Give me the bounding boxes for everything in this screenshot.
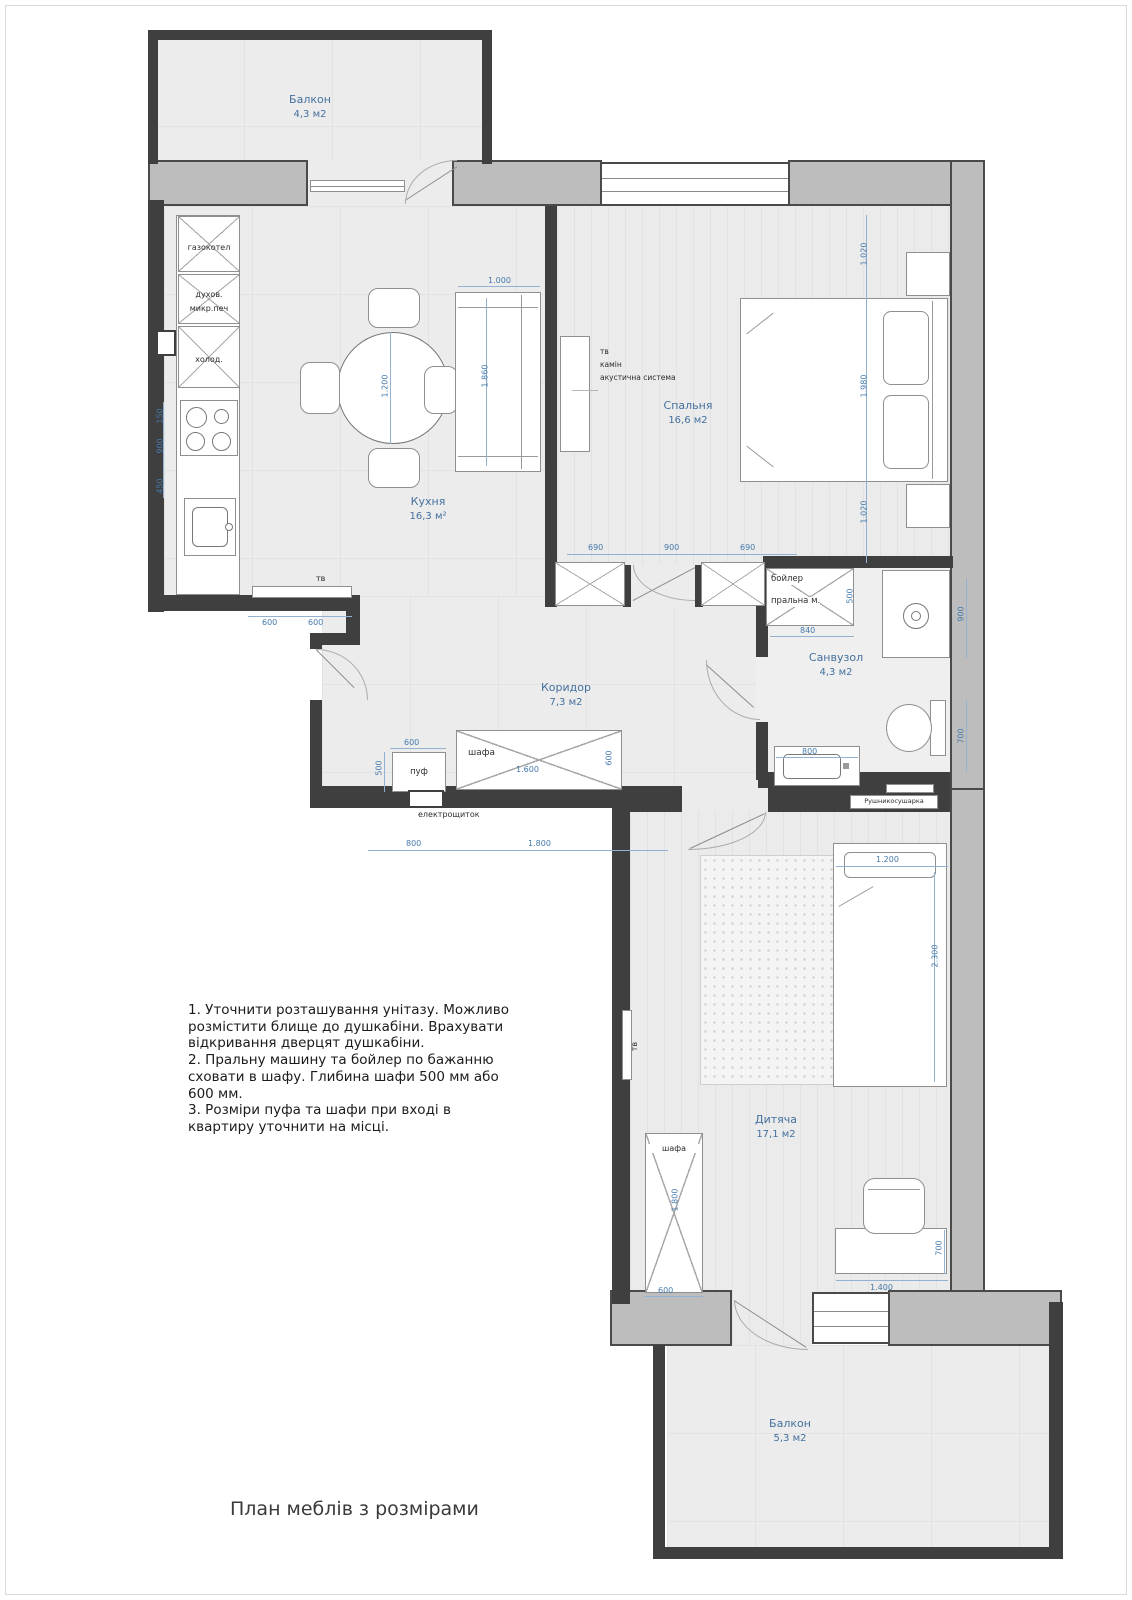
- dimension-label: 600: [658, 1287, 673, 1295]
- chair: [368, 288, 420, 328]
- dimension-line: [966, 578, 967, 658]
- exterior-wall: [950, 788, 985, 1295]
- kids-window: [812, 1292, 890, 1344]
- dimension-line: [836, 1280, 948, 1281]
- dimension-label: 2.300: [931, 945, 939, 968]
- dimension-label: 1.000: [488, 277, 511, 285]
- stove: [180, 400, 238, 456]
- burner: [212, 432, 231, 451]
- label-leader-line: [572, 390, 598, 391]
- window-line: [602, 178, 788, 179]
- burner: [186, 407, 207, 428]
- balcony-wall: [148, 30, 158, 164]
- dimension-label: 500: [847, 588, 855, 603]
- fridge-label: холод.: [179, 355, 239, 364]
- dimension-line: [944, 1230, 945, 1274]
- sofa: [455, 292, 541, 472]
- dimension-line: [966, 700, 967, 772]
- bedroom-window: [600, 162, 790, 206]
- sofa-back-line: [521, 295, 522, 469]
- room-label-kids: Дитяча 17,1 м2: [755, 1112, 797, 1142]
- blanket-fold: [746, 446, 773, 468]
- burner: [186, 432, 205, 451]
- balcony-wall: [482, 30, 492, 164]
- dimension-label: 1.980: [860, 375, 868, 398]
- room-name: Коридор: [541, 680, 591, 696]
- dimension-label: 1.020: [860, 243, 868, 266]
- exterior-wall: [950, 160, 985, 790]
- burner: [214, 409, 229, 424]
- toilet-bowl: [886, 704, 932, 752]
- dimension-label: 600: [262, 619, 277, 627]
- kitchen-tv-label: тв: [316, 574, 325, 583]
- dimension-line: [458, 286, 540, 287]
- dimension-label: 1.200: [876, 856, 899, 864]
- kids-wardrobe: [645, 1133, 703, 1293]
- room-area: 16,6 м2: [664, 414, 713, 429]
- boiler-label: бойлер: [771, 575, 803, 585]
- kitchen-tv-bench: [252, 586, 352, 598]
- fireplace-label: камін: [600, 361, 622, 370]
- dimension-label: 1.020: [860, 501, 868, 524]
- room-label-balcony-bottom: Балкон 5,3 м2: [769, 1416, 811, 1446]
- dimension-line: [934, 872, 935, 1082]
- bed: [740, 298, 948, 482]
- kitchen-left-wall: [148, 200, 164, 612]
- note-3: 3. Розміри пуфа та шафи при вході в квар…: [188, 1102, 520, 1135]
- sofa-armrest-line: [458, 307, 538, 308]
- acoustic-label: акустична система: [600, 374, 676, 383]
- balcony-window-panel: [310, 180, 405, 192]
- balcony-wall: [148, 30, 492, 40]
- room-area: 5,3 м2: [769, 1432, 811, 1447]
- chair: [424, 366, 458, 414]
- window-line: [814, 1326, 888, 1327]
- bath-left-wall: [756, 722, 768, 780]
- blanket-fold: [746, 313, 773, 335]
- dimension-label: 150: [157, 408, 165, 423]
- faucet-mark: [843, 763, 849, 769]
- dimension-line: [390, 332, 391, 444]
- bedroom-closet: [701, 562, 765, 606]
- page-title: План меблів з розмірами: [230, 1498, 479, 1520]
- hall-wardrobe-label: шафа: [468, 748, 495, 758]
- bedroom-left-wall: [545, 206, 557, 567]
- room-name: Спальня: [664, 398, 713, 414]
- corridor-left-wall: [310, 633, 322, 649]
- pouf: пуф: [392, 752, 446, 792]
- blanket-fold: [838, 886, 873, 907]
- dimension-label: 1.860: [481, 365, 489, 388]
- window-line: [311, 186, 404, 187]
- room-label-balcony-top: Балкон 4,3 м2: [289, 92, 331, 122]
- wall-vent-box: [156, 330, 176, 356]
- towel-dryer: [886, 784, 934, 793]
- dimension-label: 900: [157, 438, 165, 453]
- room-name: Балкон: [769, 1416, 811, 1432]
- dimension-label: 1.800: [528, 840, 551, 848]
- dimension-label: 840: [800, 627, 815, 635]
- dimension-line: [645, 1296, 703, 1297]
- window-line: [602, 191, 788, 192]
- dimension-line: [770, 636, 854, 637]
- dimension-label: 690: [740, 544, 755, 552]
- washer-label: пральна м.: [771, 597, 820, 607]
- dimension-label: 1.400: [870, 1284, 893, 1292]
- headboard-line: [932, 301, 933, 479]
- dimension-label: 600: [606, 750, 614, 765]
- dimension-label: 700: [958, 728, 966, 743]
- room-label-kitchen: Кухня 16,3 м²: [410, 494, 447, 524]
- chair-back-line: [868, 1189, 920, 1190]
- room-name: Балкон: [289, 92, 331, 108]
- room-name: Кухня: [410, 494, 447, 510]
- floor-plan: газокотел духов. микр.печ холод. тв тв к…: [0, 0, 1132, 1600]
- kitchen-sink: [184, 498, 236, 556]
- balcony-bottom-wall: [653, 1547, 1063, 1559]
- toilet-tank: [930, 700, 946, 756]
- room-area: 4,3 м2: [289, 108, 331, 123]
- electrical-panel-box: [408, 790, 444, 808]
- dimension-label: 1.800: [671, 1189, 679, 1212]
- shower: [882, 570, 950, 658]
- towel-dryer-label: Рушникосушарка: [864, 798, 923, 805]
- window-line: [814, 1311, 888, 1312]
- towel-dryer-label-box: Рушникосушарка: [850, 795, 938, 809]
- shower-drain-center: [911, 611, 921, 621]
- exterior-wall: [888, 1290, 1062, 1346]
- notes-block: 1. Уточнити розташування унітазу. Можлив…: [188, 1002, 520, 1136]
- dimension-line: [248, 616, 352, 617]
- dimension-line: [368, 850, 668, 851]
- note-2: 2. Пральну машину та бойлер по бажанню с…: [188, 1052, 520, 1102]
- tv-label: тв: [600, 348, 609, 357]
- pillow: [883, 395, 929, 469]
- dimension-label: 800: [802, 748, 817, 756]
- exterior-wall: [148, 160, 308, 206]
- dimension-label: 690: [588, 544, 603, 552]
- pillow: [883, 311, 929, 385]
- nightstand: [906, 252, 950, 296]
- electrical-panel-label: електрощиток: [418, 810, 480, 819]
- dimension-line: [384, 752, 385, 792]
- chair: [300, 362, 340, 414]
- dimension-line: [567, 554, 797, 555]
- dimension-label: 450: [157, 478, 165, 493]
- kids-top-wall: [612, 786, 682, 812]
- dimension-line: [776, 757, 858, 758]
- sink-basin: [192, 507, 228, 547]
- desk-chair: [863, 1178, 925, 1234]
- balcony-bottom-wall: [653, 1345, 665, 1559]
- chair: [368, 448, 420, 488]
- kids-tv-label: тв: [630, 1042, 639, 1051]
- room-area: 4,3 м2: [809, 666, 863, 681]
- room-label-bathroom: Санвузол 4,3 м2: [809, 650, 863, 680]
- dimension-label: 1.200: [381, 375, 389, 398]
- balcony-bottom-wall: [1049, 1302, 1063, 1559]
- dimension-label: 700: [936, 1240, 944, 1255]
- room-label-bedroom: Спальня 16,6 м2: [664, 398, 713, 428]
- room-label-corridor: Коридор 7,3 м2: [541, 680, 591, 710]
- exterior-wall: [452, 160, 602, 206]
- room-area: 16,3 м²: [410, 510, 447, 525]
- dimension-label: 600: [404, 739, 419, 747]
- microwave-label: микр.печ: [179, 304, 239, 313]
- room-name: Санвузол: [809, 650, 863, 666]
- bedroom-closet: [555, 562, 625, 606]
- dimension-label: 500: [376, 760, 384, 775]
- dimension-label: 900: [958, 606, 966, 621]
- hall-wardrobe: [456, 730, 622, 790]
- sofa-armrest-line: [458, 456, 538, 457]
- oven-label: духов.: [179, 290, 239, 299]
- dimension-label: 600: [308, 619, 323, 627]
- faucet: [225, 523, 233, 531]
- note-1: 1. Уточнити розташування унітазу. Можлив…: [188, 1002, 520, 1052]
- desk: [835, 1228, 947, 1274]
- kids-wardrobe-label: шафа: [647, 1144, 701, 1153]
- balcony-bottom-floor: [667, 1345, 1049, 1547]
- pouf-label: пуф: [410, 767, 428, 777]
- dimension-line: [390, 748, 446, 749]
- corridor-left-wall: [310, 700, 322, 790]
- room-name: Дитяча: [755, 1112, 797, 1128]
- gas-boiler-label: газокотел: [179, 243, 239, 252]
- room-area: 17,1 м2: [755, 1128, 797, 1143]
- bath-top-wall: [763, 556, 953, 568]
- nightstand: [906, 484, 950, 528]
- dimension-label: 800: [406, 840, 421, 848]
- room-area: 7,3 м2: [541, 696, 591, 711]
- tv-unit: [560, 336, 590, 452]
- dimension-label: 1.600: [516, 766, 539, 774]
- dimension-label: 900: [664, 544, 679, 552]
- dimension-line: [836, 866, 948, 867]
